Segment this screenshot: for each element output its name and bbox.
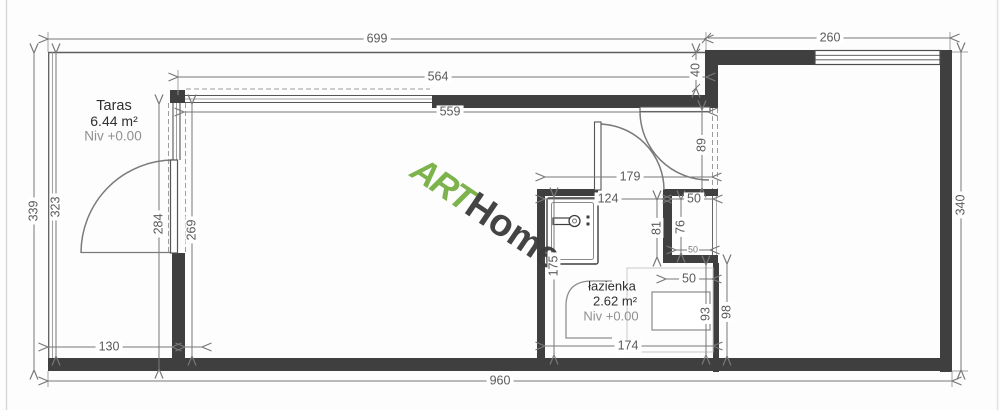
dim-entry-opening: 89 — [695, 135, 708, 155]
dim-niche-width: 50 — [684, 192, 704, 205]
floor-plan: ARTHome Taras 6.44 m² Niv +0.00 łazienka… — [0, 0, 1000, 410]
dim-top-inner-lower: 559 — [437, 105, 464, 118]
dim-shower-height: 93 — [699, 304, 712, 324]
room-area-lazienka: 2.62 m² — [593, 294, 637, 309]
dim-facade-offset: 40 — [689, 60, 702, 80]
dim-bath-top-width: 179 — [617, 170, 644, 183]
dim-left-inner: 323 — [49, 194, 62, 221]
dim-top-right: 260 — [817, 31, 844, 44]
dim-top-inner-upper: 564 — [425, 70, 452, 83]
dim-bath-inner-width: 124 — [595, 192, 622, 205]
room-label-lazienka: łazienka — [588, 279, 636, 294]
room-level-lazienka: Niv +0.00 — [583, 309, 638, 324]
dim-step-height: 98 — [720, 302, 733, 322]
dim-step-width: 50 — [679, 272, 699, 285]
dim-bath-inner-height: 175 — [547, 253, 560, 280]
dim-room-height-left: 269 — [185, 217, 198, 244]
room-level-taras: Niv +0.00 — [84, 129, 141, 144]
dim-right-total: 340 — [954, 192, 967, 219]
dim-terrace-height: 284 — [152, 211, 165, 238]
dim-left-total: 339 — [27, 198, 40, 225]
room-area-taras: 6.44 m² — [90, 113, 137, 129]
dim-niche-bottom-width: 50 — [687, 245, 699, 254]
dim-bath-bottom-width: 174 — [615, 339, 642, 352]
dim-top-total: 699 — [364, 32, 391, 45]
dim-bottom-total: 960 — [487, 374, 514, 387]
room-label-taras: Taras — [96, 98, 131, 114]
dim-niche-height: 76 — [674, 217, 687, 237]
dim-terrace-bottom-width: 130 — [96, 340, 123, 353]
dim-bath-upper-height: 81 — [650, 218, 663, 238]
